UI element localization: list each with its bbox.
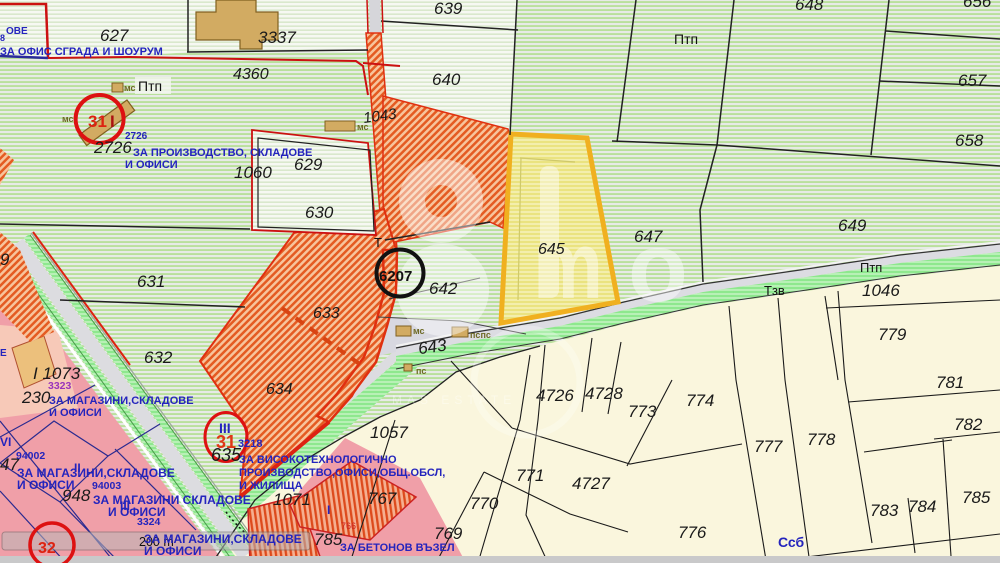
svg-text:Тзв: Тзв bbox=[764, 283, 785, 298]
svg-text:II: II bbox=[74, 461, 81, 475]
svg-text:И ЖИЛИЩА: И ЖИЛИЩА bbox=[239, 480, 303, 492]
svg-text:649: 649 bbox=[838, 216, 867, 235]
svg-text:Ссб: Ссб bbox=[778, 534, 805, 550]
svg-text:ОВЕ: ОВЕ bbox=[6, 26, 28, 37]
svg-text:ПРОИЗВОДСТВО,ОФИСИ,ОБЩ.ОБСЛ,: ПРОИЗВОДСТВО,ОФИСИ,ОБЩ.ОБСЛ, bbox=[239, 467, 445, 479]
svg-text:766: 766 bbox=[341, 521, 356, 531]
svg-text:781: 781 bbox=[936, 373, 964, 392]
svg-text:ЗА БЕТОНОВ ВЪЗЕЛ: ЗА БЕТОНОВ ВЪЗЕЛ bbox=[340, 542, 455, 554]
svg-text:3218: 3218 bbox=[238, 438, 262, 450]
svg-text:Т: Т bbox=[374, 235, 382, 250]
svg-text:6207: 6207 bbox=[379, 268, 412, 285]
svg-text:ЗА ВИСОКОТЕХНОЛОГИЧНО: ЗА ВИСОКОТЕХНОЛОГИЧНО bbox=[239, 454, 397, 466]
svg-text:778: 778 bbox=[807, 430, 836, 449]
svg-text:634: 634 bbox=[266, 381, 293, 398]
svg-text:мс: мс bbox=[62, 114, 74, 124]
svg-text:639: 639 bbox=[434, 0, 463, 18]
svg-text:632: 632 bbox=[144, 348, 173, 367]
svg-text:мс: мс bbox=[124, 83, 136, 93]
svg-text:Птп: Птп bbox=[138, 78, 162, 94]
svg-text:ЗА МАГАЗИНИ,СКЛАДОВЕ: ЗА МАГАЗИНИ,СКЛАДОВЕ bbox=[49, 395, 194, 407]
svg-text:4360: 4360 bbox=[233, 66, 269, 83]
svg-text:И ОФИСИ: И ОФИСИ bbox=[144, 544, 201, 558]
svg-text:770: 770 bbox=[470, 494, 499, 513]
svg-text:769: 769 bbox=[434, 524, 463, 543]
svg-text:645: 645 bbox=[538, 241, 565, 258]
svg-text:656: 656 bbox=[963, 0, 992, 11]
svg-text:3323: 3323 bbox=[48, 380, 72, 392]
svg-text:1057: 1057 bbox=[370, 423, 408, 442]
svg-text:777: 777 bbox=[754, 437, 783, 456]
svg-text:783: 783 bbox=[870, 501, 899, 520]
svg-text:9: 9 bbox=[0, 250, 10, 269]
svg-text:31: 31 bbox=[88, 112, 107, 131]
svg-text:И ОФИСИ: И ОФИСИ bbox=[49, 407, 102, 419]
svg-text:657: 657 bbox=[958, 71, 987, 90]
svg-text:230: 230 bbox=[21, 388, 51, 407]
svg-text:774: 774 bbox=[686, 391, 714, 410]
svg-text:776: 776 bbox=[678, 523, 707, 542]
svg-text:4726: 4726 bbox=[536, 386, 574, 405]
svg-text:785: 785 bbox=[962, 488, 991, 507]
svg-text:мс: мс bbox=[357, 122, 369, 132]
svg-text:4727: 4727 bbox=[572, 474, 610, 493]
svg-text:VI: VI bbox=[0, 435, 11, 449]
svg-text:643: 643 bbox=[417, 335, 448, 358]
svg-text:630: 630 bbox=[305, 203, 334, 222]
svg-text:642: 642 bbox=[429, 279, 458, 298]
svg-text:3337: 3337 bbox=[258, 28, 296, 47]
svg-text:647: 647 bbox=[634, 227, 663, 246]
svg-text:MAS ESTATE: MAS ESTATE bbox=[392, 393, 516, 407]
svg-text:Птп: Птп bbox=[674, 31, 698, 47]
svg-text:I: I bbox=[327, 503, 330, 517]
svg-text:И ОФИСИ: И ОФИСИ bbox=[125, 159, 178, 171]
svg-text:658: 658 bbox=[955, 131, 984, 150]
svg-text:1071: 1071 bbox=[273, 490, 311, 509]
svg-text:мс: мс bbox=[413, 326, 425, 336]
svg-text:m: m bbox=[533, 212, 603, 319]
svg-text:640: 640 bbox=[432, 70, 461, 89]
svg-text:Е: Е bbox=[0, 348, 7, 359]
svg-text:32: 32 bbox=[38, 540, 56, 557]
svg-text:771: 771 bbox=[516, 466, 544, 485]
svg-text:627: 627 bbox=[100, 26, 129, 45]
svg-text:Птп: Птп bbox=[860, 260, 882, 275]
svg-text:633: 633 bbox=[313, 305, 340, 322]
svg-text:773: 773 bbox=[628, 402, 657, 421]
svg-text:2726: 2726 bbox=[125, 131, 148, 142]
svg-text:94003: 94003 bbox=[92, 480, 121, 492]
svg-text:782: 782 bbox=[954, 415, 983, 434]
svg-text:8: 8 bbox=[0, 33, 5, 43]
svg-text:785: 785 bbox=[314, 530, 343, 549]
svg-text:III: III bbox=[120, 499, 130, 513]
svg-text:4728: 4728 bbox=[585, 384, 623, 403]
svg-text:пспс: пспс bbox=[470, 330, 491, 340]
svg-text:ЗА ПРОИЗВОДСТВО, СКЛАДОВЕ: ЗА ПРОИЗВОДСТВО, СКЛАДОВЕ bbox=[133, 147, 312, 159]
svg-text:779: 779 bbox=[878, 325, 907, 344]
svg-text:ЗА ОФИС СГРАДА И ШОУРУМ: ЗА ОФИС СГРАДА И ШОУРУМ bbox=[0, 46, 163, 58]
svg-text:И ОФИСИ: И ОФИСИ bbox=[17, 478, 74, 492]
svg-text:пс: пс bbox=[416, 366, 426, 376]
svg-text:648: 648 bbox=[795, 0, 824, 14]
svg-text:I: I bbox=[110, 112, 115, 131]
svg-text:1046: 1046 bbox=[862, 281, 900, 300]
svg-text:3324: 3324 bbox=[137, 516, 161, 528]
svg-text:631: 631 bbox=[137, 272, 165, 291]
svg-text:1060: 1060 bbox=[234, 163, 272, 182]
svg-text:784: 784 bbox=[908, 497, 936, 516]
svg-text:94002: 94002 bbox=[16, 450, 45, 462]
svg-text:767: 767 bbox=[368, 489, 397, 508]
